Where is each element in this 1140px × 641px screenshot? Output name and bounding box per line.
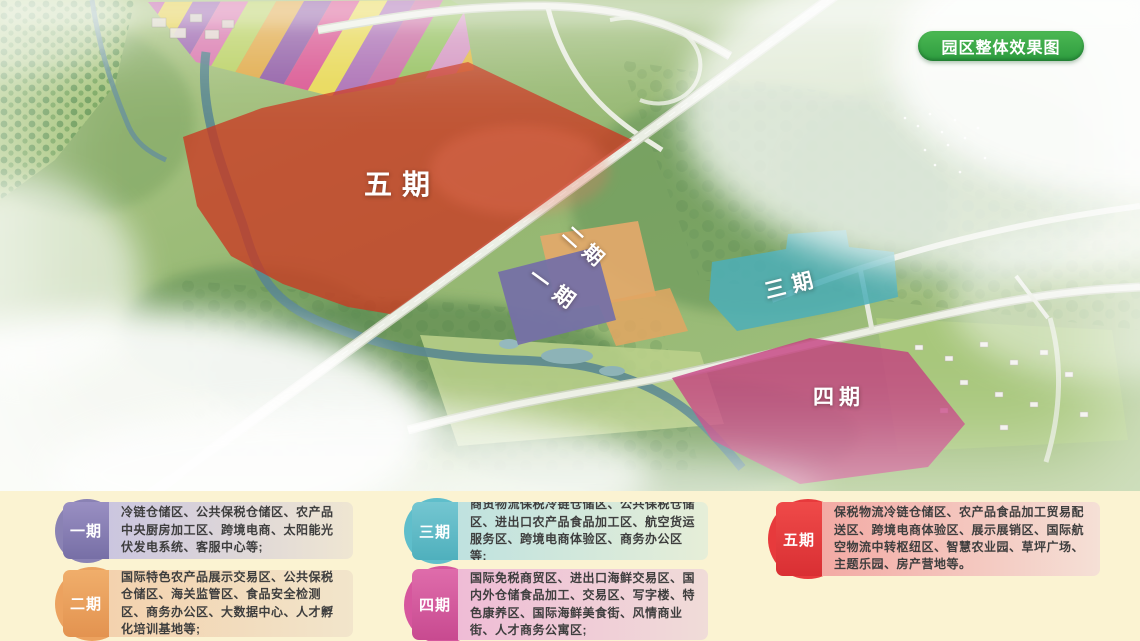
legend-item-phase-4: 四期 国际免税商贸区、进出口海鲜交易区、国内外仓储食品加工、交易区、写字楼、特色… bbox=[412, 569, 708, 640]
legend-phase-tag: 二期 bbox=[63, 570, 109, 637]
legend-phase-tag: 一期 bbox=[63, 502, 109, 559]
phase-legend: 一期 冷链仓储区、公共保税仓储区、农产品中央厨房加工区、跨境电商、太阳能光伏发电… bbox=[0, 491, 1140, 641]
legend-item-phase-1: 一期 冷链仓储区、公共保税仓储区、农产品中央厨房加工区、跨境电商、太阳能光伏发电… bbox=[63, 502, 353, 559]
legend-phase-desc: 国际特色农产品展示交易区、公共保税仓储区、海关监管区、食品安全检测区、商务办公区… bbox=[109, 570, 353, 637]
legend-phase-tag: 五期 bbox=[776, 502, 822, 576]
slide: 五期 二期 一期 三期 四期 园区整体效果图 一期 冷链仓储区、公共保税仓储区、… bbox=[0, 0, 1140, 641]
legend-phase-desc: 商贸物流保税冷链仓储区、公共保税仓储区、进出口农产品食品加工区、航空货运服务区、… bbox=[458, 502, 708, 560]
legend-item-phase-3: 三期 商贸物流保税冷链仓储区、公共保税仓储区、进出口农产品食品加工区、航空货运服… bbox=[412, 502, 708, 560]
legend-phase-desc: 国际免税商贸区、进出口海鲜交易区、国内外仓储食品加工、交易区、写字楼、特色康养区… bbox=[458, 569, 708, 640]
legend-phase-tag: 三期 bbox=[412, 502, 458, 560]
legend-phase-desc: 保税物流冷链仓储区、农产品食品加工贸易配送区、跨境电商体验区、展示展销区、国际航… bbox=[822, 502, 1100, 576]
legend-phase-tag: 四期 bbox=[412, 569, 458, 640]
map-title-badge: 园区整体效果图 bbox=[918, 31, 1084, 61]
legend-item-phase-2: 二期 国际特色农产品展示交易区、公共保税仓储区、海关监管区、食品安全检测区、商务… bbox=[63, 570, 353, 637]
map-label-phase-5: 五期 bbox=[364, 163, 440, 203]
legend-item-phase-5: 五期 保税物流冷链仓储区、农产品食品加工贸易配送区、跨境电商体验区、展示展销区、… bbox=[776, 502, 1100, 576]
map-label-phase-4: 四期 bbox=[813, 381, 865, 411]
aerial-masterplan-map: 五期 二期 一期 三期 四期 园区整体效果图 bbox=[0, 0, 1140, 491]
legend-phase-desc: 冷链仓储区、公共保税仓储区、农产品中央厨房加工区、跨境电商、太阳能光伏发电系统、… bbox=[109, 502, 353, 559]
